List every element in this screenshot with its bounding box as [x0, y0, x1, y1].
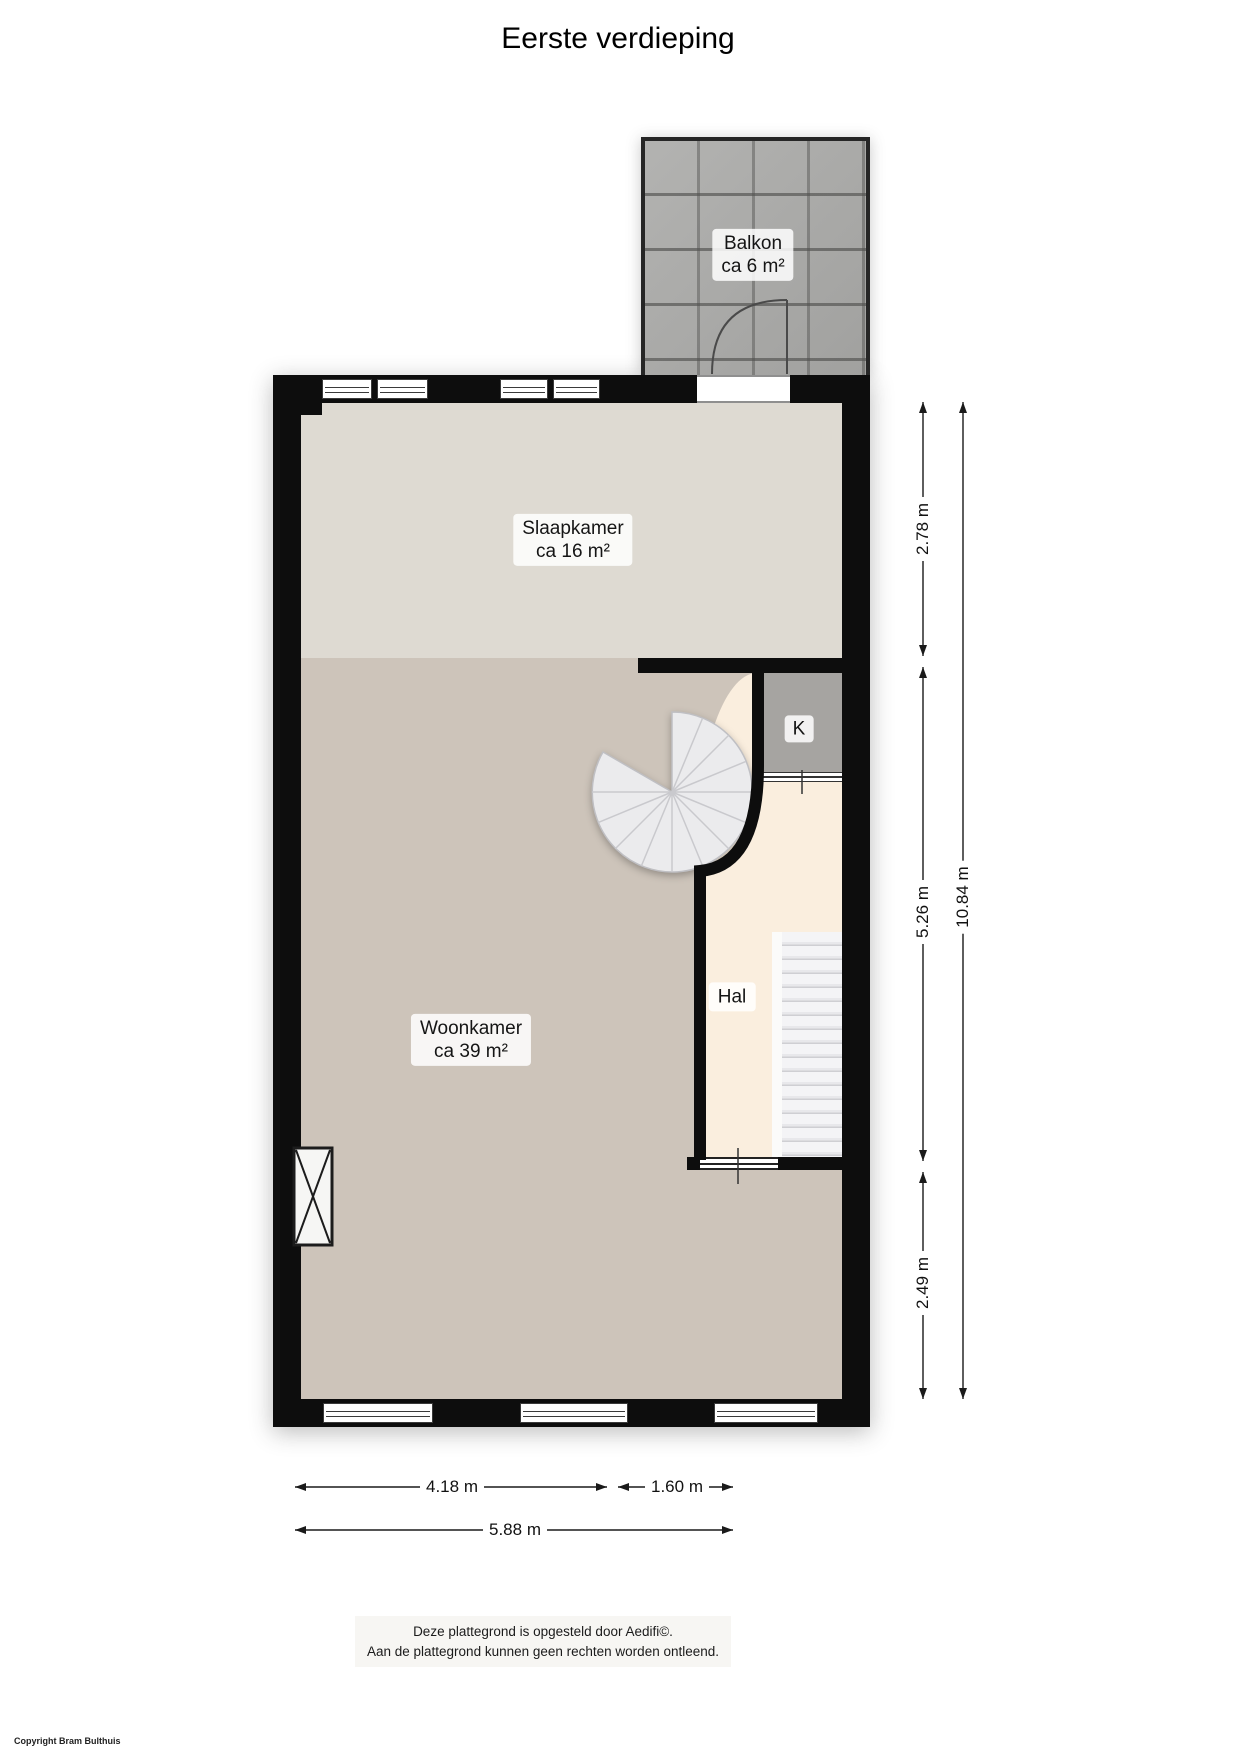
window-bottom-2: [520, 1403, 628, 1423]
window-glass: [326, 1411, 430, 1417]
disclaimer: Deze plattegrond is opgesteld door Aedif…: [355, 1616, 731, 1667]
window-top-2: [377, 379, 428, 399]
window-glass: [503, 387, 545, 393]
balkon-door-opening: [697, 375, 790, 403]
staircase-edge: [772, 932, 782, 1158]
dim-bottom-total: 5.88 m: [483, 1520, 547, 1540]
window-top-4: [553, 379, 600, 399]
dim-right-total: 10.84 m: [953, 860, 973, 933]
window-top-3: [500, 379, 548, 399]
page-title: Eerste verdieping: [501, 22, 734, 56]
dim-right-seg2: 5.26 m: [913, 880, 933, 944]
window-glass: [325, 387, 369, 393]
woonkamer-area: ca 39 m²: [420, 1040, 522, 1063]
woonkamer-name: Woonkamer: [420, 1017, 522, 1040]
slaapkamer-name: Slaapkamer: [522, 517, 623, 540]
wall-corner-stub: [301, 403, 322, 415]
window-glass: [380, 387, 425, 393]
slaapkamer-area: ca 16 m²: [522, 540, 623, 563]
keuken-label: K: [785, 715, 814, 742]
floorplan-page: Eerste verdieping: [0, 0, 1240, 1754]
dim-bottom-seg1: 4.18 m: [420, 1477, 484, 1497]
keuken-hatch-door: [757, 772, 842, 782]
window-bottom-1: [323, 1403, 433, 1423]
woonkamer-label: Woonkamer ca 39 m²: [411, 1014, 531, 1066]
wall-right: [842, 375, 870, 1427]
slaapkamer-label: Slaapkamer ca 16 m²: [513, 514, 632, 566]
copyright-notice: Copyright Bram Bulthuis: [14, 1736, 121, 1746]
wall-divider-slaapkamer: [638, 658, 842, 673]
wall-left: [273, 375, 301, 1427]
balkon-name: Balkon: [721, 232, 784, 255]
balkon-area: ca 6 m²: [721, 255, 784, 278]
hal-label: Hal: [709, 982, 756, 1011]
window-glass: [523, 1411, 625, 1417]
dim-bottom-seg2: 1.60 m: [645, 1477, 709, 1497]
disclaimer-line1: Deze plattegrond is opgesteld door Aedif…: [367, 1622, 719, 1642]
window-top-1: [322, 379, 372, 399]
dim-right-seg3: 2.49 m: [913, 1251, 933, 1315]
hal-sliding-door: [700, 1157, 778, 1170]
window-bottom-3: [714, 1403, 818, 1423]
balkon-label: Balkon ca 6 m²: [712, 229, 793, 281]
disclaimer-line2: Aan de plattegrond kunnen geen rechten w…: [367, 1642, 719, 1662]
window-glass: [717, 1411, 815, 1417]
straight-staircase: [782, 932, 842, 1158]
window-glass: [556, 387, 597, 393]
dim-right-seg1: 2.78 m: [913, 497, 933, 561]
